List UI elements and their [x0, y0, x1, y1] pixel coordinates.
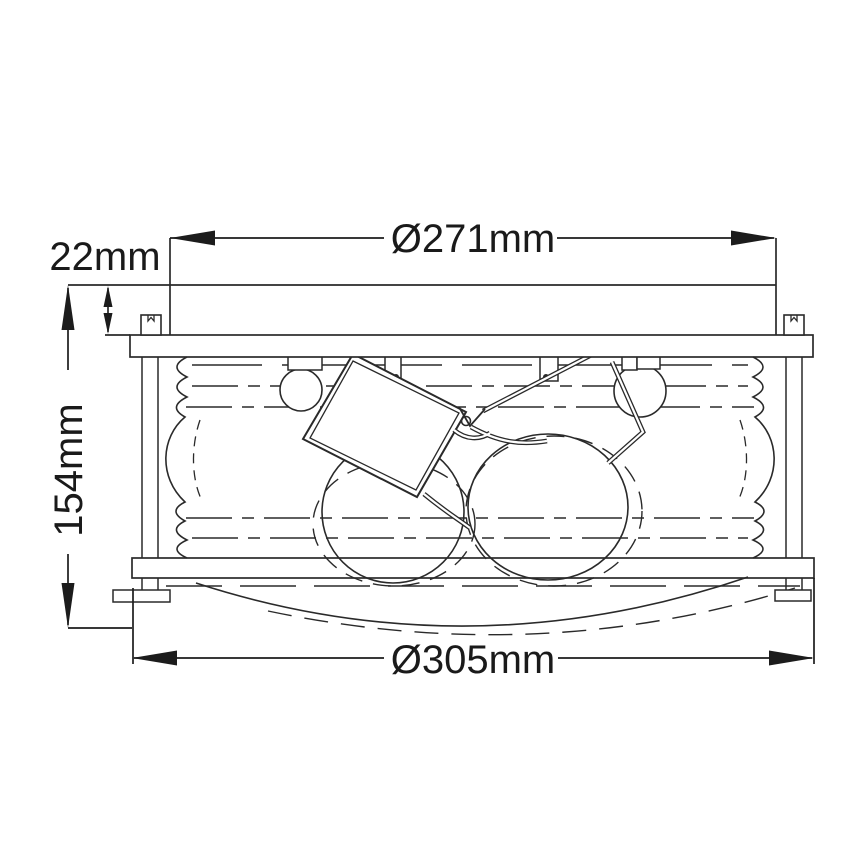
tilted-bracket-plate	[303, 354, 466, 497]
dimension-label-bottom-diameter: Ø305mm	[391, 638, 556, 682]
dimension-canopy-height	[104, 286, 113, 334]
dimension-label-overall-height: 154mm	[47, 403, 91, 536]
socket-bracket	[288, 356, 322, 370]
bottom-ring	[132, 558, 814, 578]
dimension-label-top-diameter: Ø271mm	[391, 217, 556, 261]
arrowhead-left	[170, 231, 215, 246]
ceiling-light-technical-drawing: Ø271mm 22mm 154mm Ø305mm	[0, 0, 868, 868]
braces-and-wires	[424, 352, 643, 528]
arrowhead-right	[731, 231, 776, 246]
arrowhead-up	[104, 286, 113, 307]
arrowhead-down	[104, 313, 113, 334]
glass-rib-lines	[166, 365, 800, 586]
arrowhead-left	[132, 651, 177, 666]
screw-shafts	[142, 357, 802, 590]
dimension-label-canopy-height: 22mm	[49, 235, 160, 279]
technical-drawing-page: Ø271mm 22mm 154mm Ø305mm	[0, 0, 868, 868]
socket-bracket	[637, 356, 660, 369]
socket-bracket	[622, 356, 637, 370]
right-bulb	[614, 365, 666, 417]
left-bulb	[280, 369, 322, 411]
arrowhead-down	[62, 583, 75, 628]
arrowhead-up	[62, 285, 75, 330]
left-finial-nut	[113, 590, 170, 602]
right-finial-nut	[775, 590, 811, 601]
mounting-plate	[130, 335, 813, 357]
arrowhead-right	[769, 651, 814, 666]
